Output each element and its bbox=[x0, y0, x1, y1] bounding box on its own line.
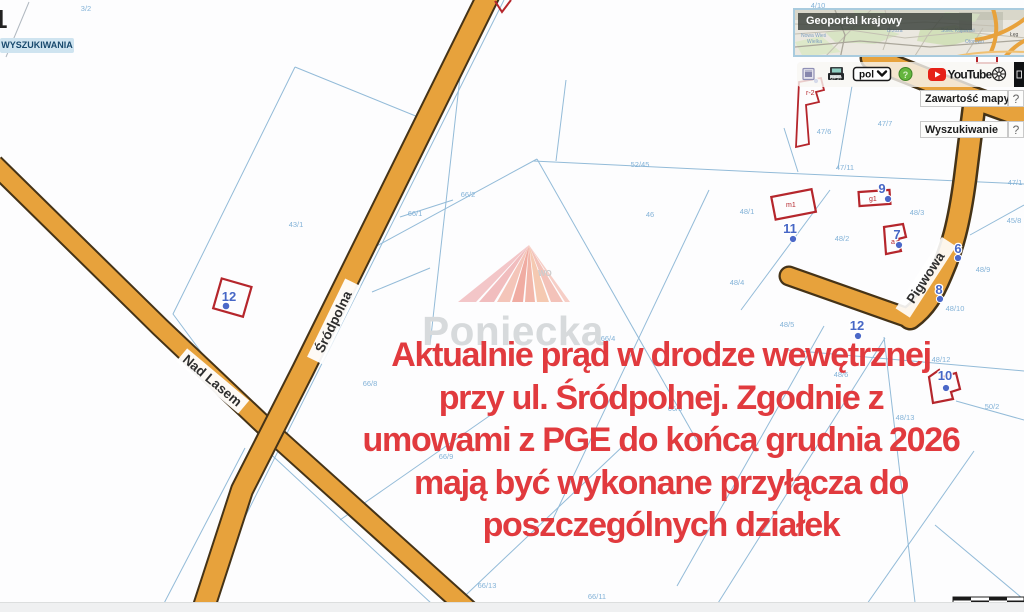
svg-text:66/1: 66/1 bbox=[408, 209, 423, 218]
svg-text:Otorowo: Otorowo bbox=[965, 39, 984, 45]
svg-text:48/4: 48/4 bbox=[730, 278, 745, 287]
svg-text:12: 12 bbox=[222, 289, 236, 304]
svg-text:GPS?: GPS? bbox=[830, 76, 843, 81]
svg-text:8: 8 bbox=[935, 282, 942, 297]
svg-text:48/3: 48/3 bbox=[910, 208, 925, 217]
svg-text:11: 11 bbox=[783, 221, 797, 236]
svg-text:12: 12 bbox=[850, 318, 864, 333]
svg-text:9: 9 bbox=[878, 181, 885, 196]
svg-text:48/9: 48/9 bbox=[976, 265, 991, 274]
svg-text:m1: m1 bbox=[786, 202, 796, 209]
svg-text:r-2: r-2 bbox=[806, 90, 815, 97]
svg-text:47/7: 47/7 bbox=[878, 119, 893, 128]
svg-text:7: 7 bbox=[893, 227, 900, 242]
svg-text:47/1: 47/1 bbox=[1008, 178, 1023, 187]
svg-text:52/45: 52/45 bbox=[631, 160, 650, 169]
svg-text:47/11: 47/11 bbox=[836, 163, 854, 172]
svg-text:Łęg: Łęg bbox=[1010, 32, 1019, 38]
svg-text:48/10: 48/10 bbox=[946, 304, 965, 313]
svg-text:48/2: 48/2 bbox=[835, 234, 850, 243]
svg-text:45/8: 45/8 bbox=[1007, 216, 1022, 225]
svg-text:66/13: 66/13 bbox=[478, 581, 497, 590]
svg-text:g1: g1 bbox=[869, 196, 877, 203]
svg-text:66/2: 66/2 bbox=[461, 190, 476, 199]
svg-text:Nad Lasem: Nad Lasem bbox=[180, 352, 245, 410]
svg-text:48/1: 48/1 bbox=[740, 207, 755, 216]
svg-text:66/11: 66/11 bbox=[588, 592, 606, 601]
svg-text:43/1: 43/1 bbox=[289, 220, 304, 229]
svg-text:pol: pol bbox=[859, 70, 874, 81]
svg-text:WO: WO bbox=[538, 269, 552, 278]
svg-text:47/6: 47/6 bbox=[817, 127, 832, 136]
svg-text:46: 46 bbox=[646, 210, 654, 219]
svg-text:48/5: 48/5 bbox=[780, 320, 795, 329]
svg-text:YouTube: YouTube bbox=[948, 68, 993, 82]
svg-text:3/2: 3/2 bbox=[81, 4, 91, 13]
svg-text:?: ? bbox=[903, 70, 909, 80]
svg-text:Wielka: Wielka bbox=[807, 39, 822, 45]
svg-text:6: 6 bbox=[954, 241, 961, 256]
